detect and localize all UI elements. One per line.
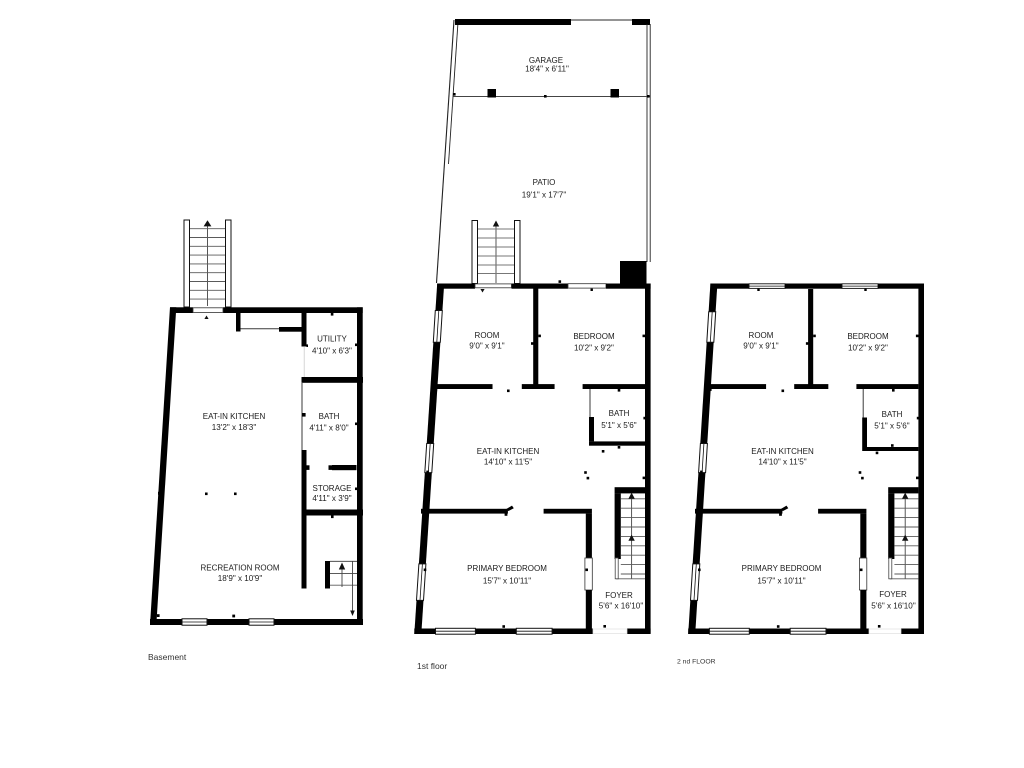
svg-text:5'1" x 5'6": 5'1" x 5'6" xyxy=(874,422,910,431)
svg-text:PRIMARY BEDROOM: PRIMARY BEDROOM xyxy=(467,564,547,573)
svg-text:RECREATION ROOM: RECREATION ROOM xyxy=(201,564,280,573)
svg-text:4'10" x 6'3": 4'10" x 6'3" xyxy=(312,347,352,356)
svg-text:UTILITY: UTILITY xyxy=(317,335,347,344)
svg-text:EAT-IN KITCHEN: EAT-IN KITCHEN xyxy=(751,447,814,456)
svg-text:FOYER: FOYER xyxy=(605,591,633,600)
svg-text:4'11" x 3'9": 4'11" x 3'9" xyxy=(312,494,351,503)
svg-text:BEDROOM: BEDROOM xyxy=(573,332,615,341)
svg-text:BATH: BATH xyxy=(319,412,340,421)
svg-text:ROOM: ROOM xyxy=(749,331,774,340)
svg-text:4'11" x 8'0": 4'11" x 8'0" xyxy=(309,424,348,433)
svg-text:18'9" x 10'9": 18'9" x 10'9" xyxy=(218,574,263,583)
svg-text:9'0" x 9'1": 9'0" x 9'1" xyxy=(469,342,505,351)
svg-text:10'2" x 9'2": 10'2" x 9'2" xyxy=(848,343,888,352)
svg-text:BEDROOM: BEDROOM xyxy=(847,332,889,341)
svg-text:18'4" x 6'11": 18'4" x 6'11" xyxy=(525,65,569,74)
svg-text:9'0" x 9'1": 9'0" x 9'1" xyxy=(743,342,779,351)
svg-text:5'6" x 16'10": 5'6" x 16'10" xyxy=(871,602,916,611)
svg-text:10'2" x 9'2": 10'2" x 9'2" xyxy=(574,343,614,352)
svg-text:FOYER: FOYER xyxy=(879,590,907,599)
svg-text:BATH: BATH xyxy=(609,409,630,418)
svg-text:PATIO: PATIO xyxy=(533,178,556,187)
svg-text:1st floor: 1st floor xyxy=(417,661,447,671)
svg-text:14'10" x 11'5": 14'10" x 11'5" xyxy=(484,458,532,467)
svg-text:PRIMARY BEDROOM: PRIMARY BEDROOM xyxy=(742,564,822,573)
svg-text:STORAGE: STORAGE xyxy=(313,484,352,493)
svg-text:5'1" x 5'6": 5'1" x 5'6" xyxy=(601,421,637,430)
svg-text:5'6" x 16'10": 5'6" x 16'10" xyxy=(599,602,644,611)
svg-text:BATH: BATH xyxy=(882,410,903,419)
svg-text:EAT-IN KITCHEN: EAT-IN KITCHEN xyxy=(203,412,266,421)
svg-text:EAT-IN KITCHEN: EAT-IN KITCHEN xyxy=(477,447,540,456)
svg-text:15'7" x 10'11": 15'7" x 10'11" xyxy=(483,577,531,586)
svg-text:15'7" x 10'11": 15'7" x 10'11" xyxy=(757,577,805,586)
svg-text:14'10" x 11'5": 14'10" x 11'5" xyxy=(758,458,806,467)
svg-text:2 nd FLOOR: 2 nd FLOOR xyxy=(677,659,716,666)
svg-text:19'1" x 17'7": 19'1" x 17'7" xyxy=(522,191,567,200)
svg-text:13'2" x 18'3": 13'2" x 18'3" xyxy=(212,423,257,432)
svg-text:Basement: Basement xyxy=(148,652,187,662)
svg-text:ROOM: ROOM xyxy=(475,331,500,340)
